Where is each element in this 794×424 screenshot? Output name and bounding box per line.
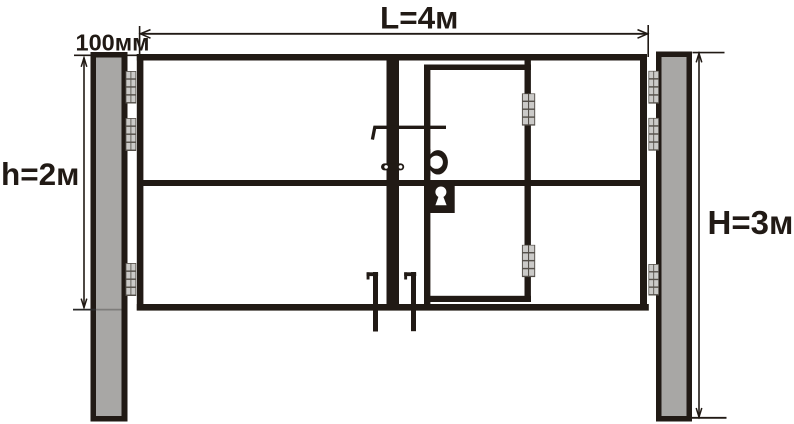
svg-text:100мм: 100мм	[76, 30, 150, 56]
svg-text:h=2м: h=2м	[1, 156, 79, 192]
svg-text:H=3м: H=3м	[708, 204, 794, 241]
svg-text:L=4м: L=4м	[380, 0, 458, 36]
